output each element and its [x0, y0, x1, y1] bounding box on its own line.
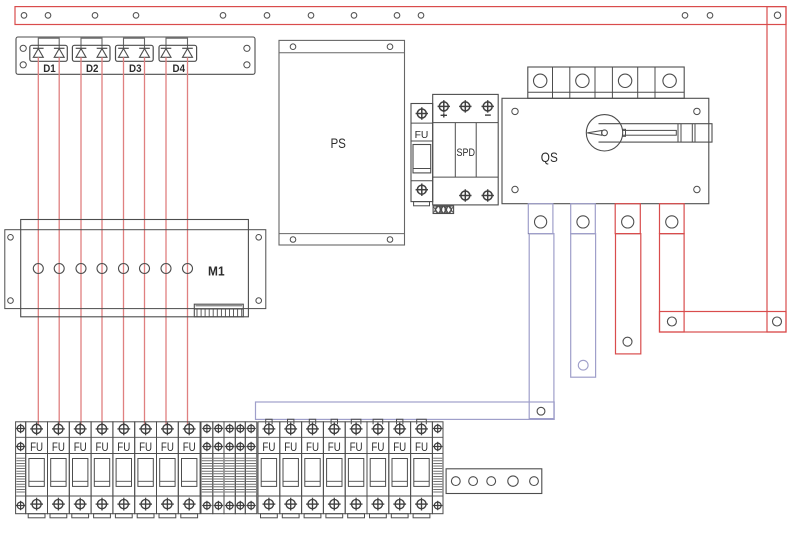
- svg-text:D3: D3: [129, 63, 142, 75]
- svg-text:D1: D1: [43, 63, 56, 75]
- svg-text:FU: FU: [415, 440, 428, 454]
- svg-text:FU: FU: [350, 440, 363, 454]
- svg-text:FU: FU: [284, 440, 297, 454]
- svg-text:M1: M1: [208, 264, 225, 279]
- svg-text:FU: FU: [328, 440, 341, 454]
- svg-text:FU: FU: [262, 440, 275, 454]
- svg-text:SPD: SPD: [457, 147, 476, 159]
- svg-text:FU: FU: [183, 440, 196, 454]
- svg-text:FU: FU: [161, 440, 174, 454]
- svg-text:FU: FU: [306, 440, 319, 454]
- svg-text:FU: FU: [117, 440, 130, 454]
- svg-text:PS: PS: [330, 135, 346, 151]
- svg-text:FU: FU: [371, 440, 384, 454]
- svg-text:FU: FU: [139, 440, 152, 454]
- svg-text:FU: FU: [415, 130, 429, 141]
- svg-text:D2: D2: [86, 63, 99, 75]
- svg-text:FU: FU: [96, 440, 109, 454]
- svg-text:D4: D4: [173, 63, 186, 75]
- svg-text:QS: QS: [541, 150, 558, 165]
- svg-text:FU: FU: [30, 440, 43, 454]
- svg-text:FU: FU: [52, 440, 65, 454]
- svg-text:FU: FU: [74, 440, 87, 454]
- svg-text:FU: FU: [393, 440, 406, 454]
